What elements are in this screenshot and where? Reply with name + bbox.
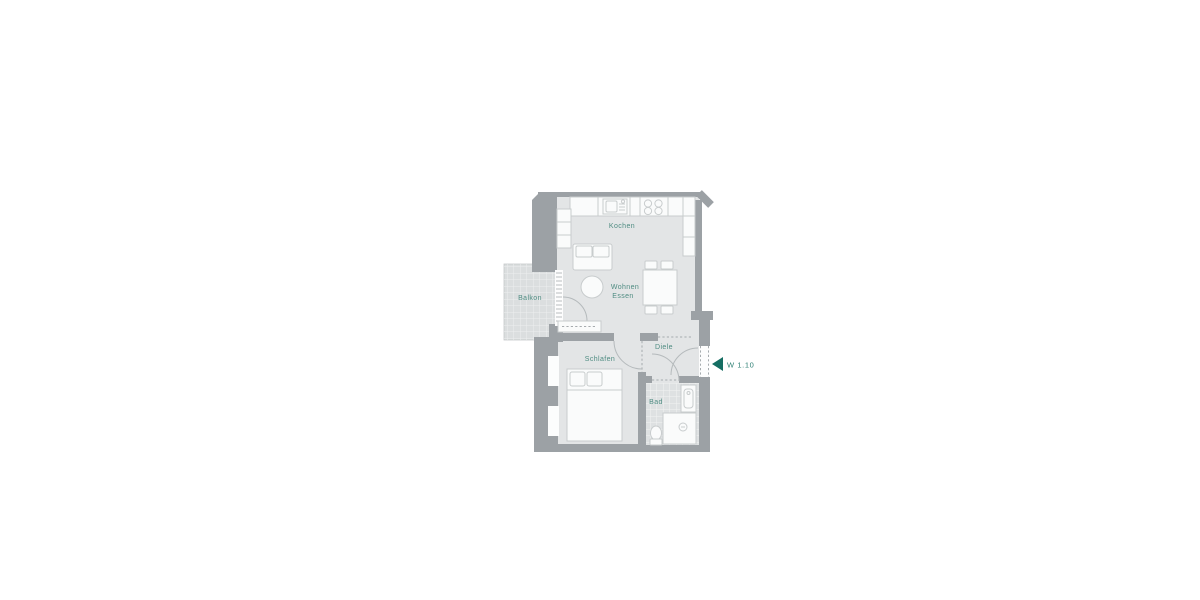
wall-right-lower [699, 318, 710, 452]
wall-bath-top-right [679, 376, 699, 383]
round-table [581, 276, 603, 298]
room-label-schlafen: Schlafen [585, 356, 615, 363]
kitchen-sink-icon [603, 199, 627, 214]
room-label-kochen: Kochen [609, 223, 635, 230]
toilet [650, 426, 662, 445]
room-label-balkon: Balkon [518, 295, 542, 302]
chair [645, 261, 657, 269]
unit-label: W 1.10 [727, 361, 754, 370]
wall-stub-diele [640, 333, 658, 341]
bed [567, 369, 622, 441]
dining-table [643, 270, 677, 305]
chair [661, 306, 673, 314]
wall-upper-left-block [532, 192, 557, 272]
wall-living-bedroom [549, 333, 614, 341]
balcony [504, 264, 556, 340]
room-label-essen: Essen [612, 293, 633, 300]
washbasin [681, 385, 696, 412]
wall-right-upper [695, 200, 702, 313]
unit-marker: W 1.10 [712, 357, 754, 371]
wall-bedroom-bath [638, 372, 646, 448]
wall-bath-top-left [644, 376, 652, 383]
chair [645, 306, 657, 314]
chair [661, 261, 673, 269]
entrance-arrow-icon [712, 357, 723, 371]
floor-plan: W 1.10 Balkon Kochen Wohnen Essen Schlaf… [0, 0, 1200, 600]
wall-top [538, 192, 702, 197]
kitchen-tall-cabinet-right [683, 197, 695, 256]
bedroom-window-lower [548, 406, 559, 436]
wall-bottom [534, 444, 710, 452]
pillow [570, 372, 585, 386]
sideboard [558, 321, 601, 332]
room-label-bad: Bad [649, 399, 663, 406]
kitchen-tall-cabinet-left [557, 209, 571, 248]
bedroom-window-upper [548, 356, 559, 386]
bedroom-furniture [567, 369, 622, 441]
balcony-tiles [504, 264, 556, 340]
sofa [573, 244, 612, 270]
room-label-diele: Diele [655, 344, 673, 351]
shower [663, 413, 696, 444]
kitchen-counter [570, 197, 688, 216]
room-label-wohnen: Wohnen [611, 284, 639, 291]
pillow [587, 372, 602, 386]
floor-plan-canvas: W 1.10 Balkon Kochen Wohnen Essen Schlaf… [0, 0, 1200, 600]
